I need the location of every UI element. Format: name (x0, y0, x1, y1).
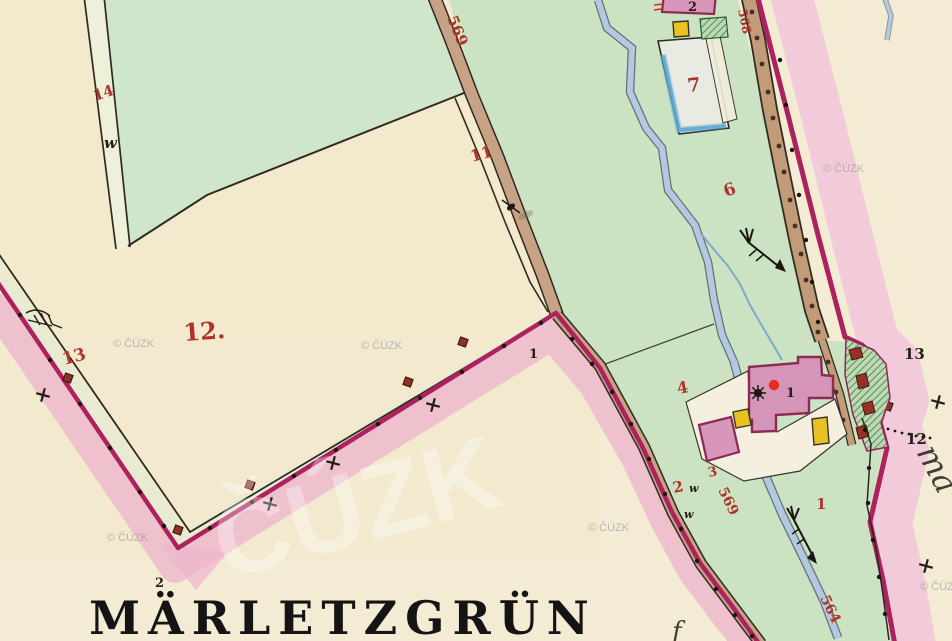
chapel-star-icon (750, 385, 766, 401)
watermark-cuzk-1: © ČÚZK (113, 337, 155, 350)
barn-yellow-1 (673, 21, 689, 37)
house-1-label: 1 (786, 386, 795, 401)
parcel-12-label: 12. (182, 315, 226, 347)
title-note: 2 (155, 576, 164, 591)
parcel-1-label: 1 (816, 495, 826, 513)
meadow-mark-w2: w (689, 482, 699, 495)
watermark-cuzk-3: © ČÚZK (823, 162, 865, 175)
barn-yellow-3 (812, 417, 829, 445)
meadow-mark-w1: w (104, 134, 118, 152)
garden-hatch-1 (700, 17, 728, 39)
barn-yellow-2 (733, 409, 751, 428)
boundary-stone-1-label: 1 (529, 347, 538, 362)
red-marker-dot[interactable] (769, 380, 779, 390)
boundary-stone-13-label: 13 (904, 345, 925, 363)
boundary-stone-12-label: 12 (906, 430, 927, 448)
map-viewport[interactable]: w w w 14 11 12. 13 7 6 4 2 3 1 569 568 5… (0, 0, 952, 641)
watermark-cuzk-2: © ČÚZK (361, 339, 403, 352)
place-name-label: MÄRLETZGRÜN (89, 590, 597, 641)
watermark-cuzk-4: © ČÚZK (588, 521, 630, 534)
watermark-cuzk-6: © ČÚZK (920, 580, 952, 593)
house-2-label: 2 (688, 0, 697, 15)
meadow-mark-w3: w (684, 508, 694, 521)
parcel-7-label: 7 (686, 74, 701, 97)
cadastral-map-svg: w w w 14 11 12. 13 7 6 4 2 3 1 569 568 5… (0, 0, 952, 641)
watermark-cuzk-5: © ČÚZK (107, 531, 149, 544)
building-3 (699, 417, 739, 461)
